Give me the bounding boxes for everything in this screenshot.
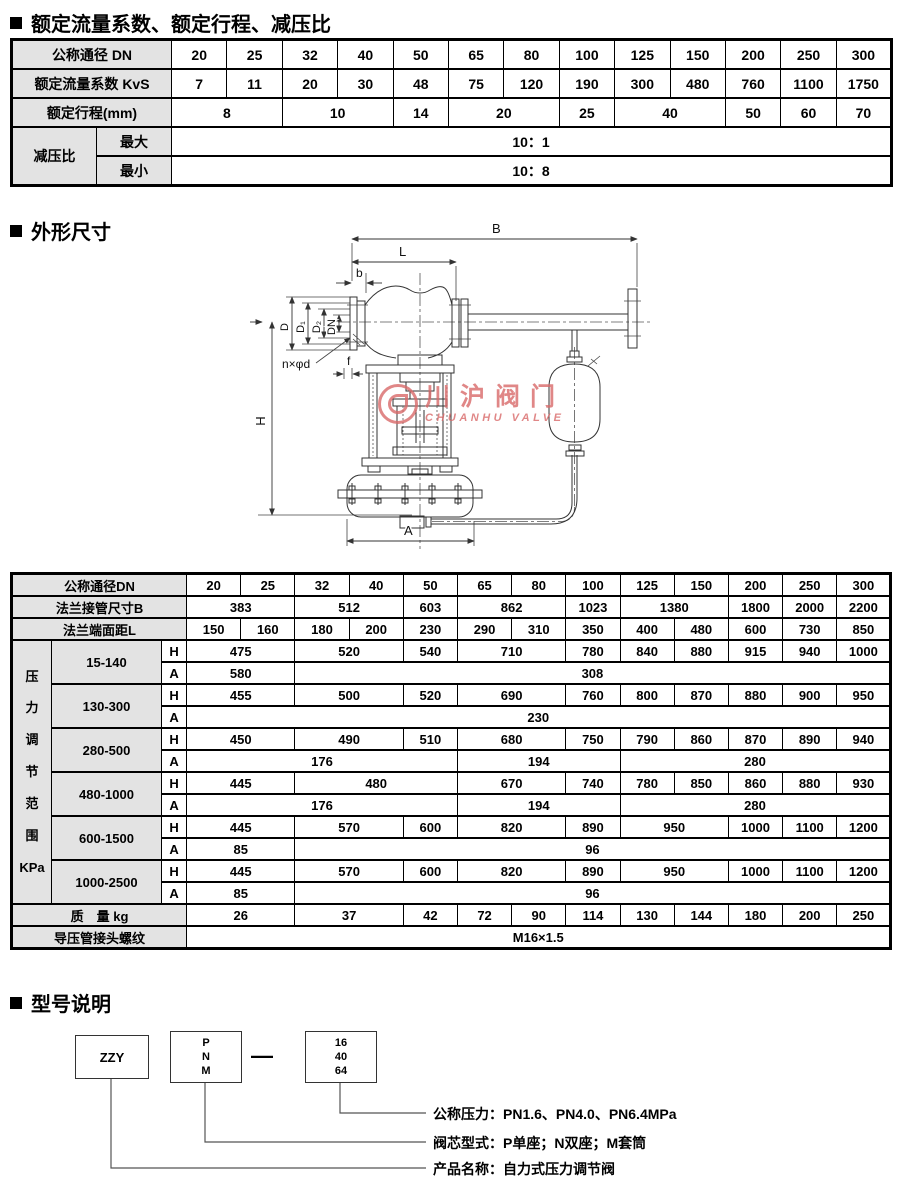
table-value-cell: 150 [674, 574, 728, 597]
table-value-cell: 1200 [837, 860, 891, 882]
dim-label-nxd: n×φd [282, 357, 310, 371]
table-value-cell: 50 [725, 98, 780, 127]
table-value-cell: 32 [295, 574, 349, 597]
table-value-cell: 603 [403, 596, 457, 618]
dim-label-A: A [404, 523, 413, 538]
table-value-cell: 125 [615, 40, 670, 70]
table-value-cell: 820 [457, 816, 565, 838]
model-box-pressure-rating: 16 40 64 [305, 1031, 377, 1083]
table-value-cell: 490 [295, 728, 403, 750]
table-value-cell: 1023 [566, 596, 620, 618]
table-row: 减压比最大10：1 [12, 127, 892, 156]
model-note-trim: 阀芯型式：P单座；N双座；M套筒 [433, 1133, 646, 1153]
table-value-cell: 1000 [837, 640, 891, 662]
table-value-cell: 300 [836, 40, 891, 70]
table-value-cell: H [162, 772, 187, 794]
table-value-cell: 850 [837, 618, 891, 640]
table-value-cell: 42 [403, 904, 457, 926]
table-value-cell: 200 [349, 618, 403, 640]
table-value-cell: 480 [295, 772, 458, 794]
table-value-cell: 200 [783, 904, 837, 926]
table-value-cell: 8 [172, 98, 283, 127]
table-value-cell: 580 [187, 662, 295, 684]
table-value-cell: 670 [457, 772, 565, 794]
table-value-cell: 200 [725, 40, 780, 70]
table-value-cell: 96 [295, 838, 891, 860]
table-value-cell: A [162, 794, 187, 816]
table-value-cell: 300 [837, 574, 891, 597]
table-value-cell: 290 [457, 618, 511, 640]
table-value-cell: 600 [403, 860, 457, 882]
table-label-cell: 导压管接头螺纹 [12, 926, 187, 949]
table-value-cell: 455 [187, 684, 295, 706]
table-value-cell: 840 [620, 640, 674, 662]
section-title-flow-text: 额定流量系数、额定行程、减压比 [31, 8, 331, 37]
table-value-cell: 350 [566, 618, 620, 640]
table-value-cell: 40 [349, 574, 403, 597]
table-value-cell: 144 [674, 904, 728, 926]
table-row: 600-1500H445570600820890950100011001200 [12, 816, 891, 838]
table-value-cell: 100 [566, 574, 620, 597]
table-value-cell: 510 [403, 728, 457, 750]
table-value-cell: 114 [566, 904, 620, 926]
table-row: 质 量 kg2637427290114130144180200250 [12, 904, 891, 926]
table-value-cell: 512 [295, 596, 403, 618]
table-value-cell: 1200 [837, 816, 891, 838]
table-value-cell: 40 [615, 98, 726, 127]
table-value-cell: 280 [620, 750, 891, 772]
table-value-cell: 96 [295, 882, 891, 904]
table-value-cell: 890 [566, 816, 620, 838]
table-value-cell: 70 [836, 98, 891, 127]
table-value-cell: 820 [457, 860, 565, 882]
catalog-page: 额定流量系数、额定行程、减压比 公称通径 DN20253240506580100… [0, 0, 900, 1186]
table-value-cell: 25 [559, 98, 614, 127]
table-row: 公称通径DN20253240506580100125150200250300 [12, 574, 891, 597]
table-value-cell: 790 [620, 728, 674, 750]
table-value-cell: 950 [837, 684, 891, 706]
table-value-cell: 40 [338, 40, 393, 70]
table-value-cell: 880 [674, 640, 728, 662]
table-value-cell: 10 [282, 98, 393, 127]
table-value-cell: 30 [338, 69, 393, 98]
table-label-cell: 280-500 [52, 728, 162, 772]
table-value-cell: 383 [187, 596, 295, 618]
table-value-cell: 308 [295, 662, 891, 684]
bullet-square-icon [10, 17, 22, 29]
table-value-cell: 280 [620, 794, 891, 816]
table-value-cell: 150 [187, 618, 241, 640]
model-box-trim-type: P N M [170, 1031, 242, 1083]
table-value-cell: 130 [620, 904, 674, 926]
table-label-cell: 公称通径 DN [12, 40, 172, 70]
table-value-cell: 90 [512, 904, 566, 926]
table-value-cell: 915 [728, 640, 782, 662]
table-value-cell: 400 [620, 618, 674, 640]
table-value-cell: 65 [448, 40, 503, 70]
table-value-cell: H [162, 860, 187, 882]
table-row: 公称通径 DN20253240506580100125150200250300 [12, 40, 892, 70]
section-title-model-text: 型号说明 [31, 988, 111, 1017]
table-value-cell: A [162, 750, 187, 772]
table-value-cell: 850 [674, 772, 728, 794]
table-value-cell: 65 [457, 574, 511, 597]
table-value-cell: 890 [783, 728, 837, 750]
table-value-cell: 900 [783, 684, 837, 706]
table-value-cell: 680 [457, 728, 565, 750]
table-value-cell: 940 [783, 640, 837, 662]
table-value-cell: 176 [187, 794, 458, 816]
table-value-cell: H [162, 816, 187, 838]
table-value-cell: 870 [674, 684, 728, 706]
table-value-cell: A [162, 838, 187, 860]
table-value-cell: 20 [187, 574, 241, 597]
table-value-cell: 730 [783, 618, 837, 640]
table-value-cell: 570 [295, 860, 403, 882]
model-note-pressure: 公称压力：PN1.6、PN4.0、PN6.4MPa [433, 1104, 677, 1124]
table-label-cell: 法兰接管尺寸B [12, 596, 187, 618]
dim-label-D1: D₁ [295, 321, 307, 333]
table-value-cell: 890 [566, 860, 620, 882]
table-value-cell: 80 [504, 40, 559, 70]
bullet-square-icon [10, 997, 22, 1009]
table-label-cell: 130-300 [52, 684, 162, 728]
dim-label-H: H [253, 416, 268, 425]
dim-label-D2: D₂ [311, 321, 323, 333]
table-value-cell: 250 [837, 904, 891, 926]
table-value-cell: H [162, 684, 187, 706]
table-value-cell: A [162, 662, 187, 684]
table-value-cell: 1750 [836, 69, 891, 98]
table-value-cell: 80 [512, 574, 566, 597]
table-value-cell: 750 [566, 728, 620, 750]
table-value-cell: 862 [457, 596, 565, 618]
table-value-cell: 194 [457, 794, 620, 816]
table-value-cell: 540 [403, 640, 457, 662]
table-row: 1000-2500H445570600820890950100011001200 [12, 860, 891, 882]
table-value-cell: 250 [783, 574, 837, 597]
table-value-cell: 445 [187, 860, 295, 882]
table-value-cell: 20 [172, 40, 227, 70]
table-value-cell: 50 [393, 40, 448, 70]
table-value-cell: 176 [187, 750, 458, 772]
table-value-cell: 25 [227, 40, 282, 70]
table-value-cell: 10：8 [172, 156, 892, 186]
table-row: 280-500H450490510680750790860870890940 [12, 728, 891, 750]
table-value-cell: 25 [241, 574, 295, 597]
table-value-cell: 32 [282, 40, 337, 70]
table-value-cell: 500 [295, 684, 403, 706]
table-value-cell: 50 [403, 574, 457, 597]
table-row: 额定行程(mm)81014202540506070 [12, 98, 892, 127]
table-value-cell: 85 [187, 838, 295, 860]
table-value-cell: 1100 [783, 816, 837, 838]
table-value-cell: 950 [620, 860, 728, 882]
table-value-cell: 60 [781, 98, 836, 127]
section-title-flow: 额定流量系数、额定行程、减压比 [10, 8, 331, 37]
table-value-cell: 760 [566, 684, 620, 706]
table-row: 压 力 调 节 范 围 KPa15-140H475520540710780840… [12, 640, 891, 662]
table-value-cell: 1800 [728, 596, 782, 618]
table-label-cell: 公称通径DN [12, 574, 187, 597]
table-value-cell: 200 [728, 574, 782, 597]
table-value-cell: 780 [566, 640, 620, 662]
dim-label-b: b [356, 266, 363, 280]
table-label-cell: 600-1500 [52, 816, 162, 860]
table-value-cell: 37 [295, 904, 403, 926]
table-value-cell: 760 [725, 69, 780, 98]
table-value-cell: 480 [670, 69, 725, 98]
table-value-cell: 570 [295, 816, 403, 838]
table-value-cell: 85 [187, 882, 295, 904]
table-value-cell: 930 [837, 772, 891, 794]
table-row: 导压管接头螺纹M16×1.5 [12, 926, 891, 949]
table-value-cell: 48 [393, 69, 448, 98]
table-value-cell: 2200 [837, 596, 891, 618]
table-value-cell: 20 [282, 69, 337, 98]
table-value-cell: 20 [448, 98, 559, 127]
table-value-cell: 1380 [620, 596, 728, 618]
table-value-cell: 600 [728, 618, 782, 640]
model-box-series: ZZY [75, 1035, 149, 1079]
valve-outline-drawing: B L b D D₁ D₂ DN n×φd f [0, 215, 900, 565]
table-value-cell: 10：1 [172, 127, 892, 156]
table-value-cell: 7 [172, 69, 227, 98]
table-value-cell: 190 [559, 69, 614, 98]
table-row: 法兰端面距L1501601802002302903103504004806007… [12, 618, 891, 640]
table-value-cell: 445 [187, 816, 295, 838]
table-value-cell: 600 [403, 816, 457, 838]
table-value-cell: 860 [728, 772, 782, 794]
table-value-cell: 870 [728, 728, 782, 750]
table-value-cell: 120 [504, 69, 559, 98]
table-value-cell: 480 [674, 618, 728, 640]
table-value-cell: 520 [403, 684, 457, 706]
table-label-cell: 480-1000 [52, 772, 162, 816]
table-value-cell: M16×1.5 [187, 926, 891, 949]
dimension-table: 公称通径DN20253240506580100125150200250300法兰… [10, 572, 892, 950]
table-label-cell: 15-140 [52, 640, 162, 684]
table-value-cell: 125 [620, 574, 674, 597]
table-value-cell: 690 [457, 684, 565, 706]
table-value-cell: 230 [187, 706, 891, 728]
table-value-cell: 780 [620, 772, 674, 794]
table-value-cell: 1000 [728, 860, 782, 882]
table-value-cell: 250 [781, 40, 836, 70]
table-value-cell: 230 [403, 618, 457, 640]
dim-label-DN: DN [326, 319, 338, 335]
table-label-cell: 压 力 调 节 范 围 KPa [12, 640, 52, 904]
model-dash: — [251, 1043, 273, 1069]
table-label-cell: 额定行程(mm) [12, 98, 172, 127]
table-value-cell: 11 [227, 69, 282, 98]
table-value-cell: 310 [512, 618, 566, 640]
dim-label-L: L [399, 244, 406, 259]
model-note-product: 产品名称：自力式压力调节阀 [433, 1159, 615, 1179]
table-label-cell: 最小 [97, 156, 172, 186]
table-value-cell: 940 [837, 728, 891, 750]
table-value-cell: 520 [295, 640, 403, 662]
table-label-cell: 1000-2500 [52, 860, 162, 904]
table-value-cell: 800 [620, 684, 674, 706]
table-label-cell: 减压比 [12, 127, 97, 186]
table-row: 130-300H455500520690760800870880900950 [12, 684, 891, 706]
table-row: 额定流量系数 KvS711203048751201903004807601100… [12, 69, 892, 98]
dim-label-D: D [279, 323, 291, 331]
table-value-cell: 880 [783, 772, 837, 794]
table-value-cell: A [162, 882, 187, 904]
table-value-cell: 710 [457, 640, 565, 662]
dim-label-B: B [492, 221, 501, 236]
table-value-cell: 880 [728, 684, 782, 706]
dim-label-f: f [347, 354, 351, 368]
table-value-cell: 14 [393, 98, 448, 127]
table-value-cell: 445 [187, 772, 295, 794]
table-value-cell: 300 [615, 69, 670, 98]
section-title-model: 型号说明 [10, 988, 111, 1017]
table-value-cell: 860 [674, 728, 728, 750]
table-label-cell: 额定流量系数 KvS [12, 69, 172, 98]
table-value-cell: 160 [241, 618, 295, 640]
table-value-cell: 2000 [783, 596, 837, 618]
table-value-cell: 100 [559, 40, 614, 70]
table-row: 最小10：8 [12, 156, 892, 186]
table-value-cell: 26 [187, 904, 295, 926]
table-label-cell: 法兰端面距L [12, 618, 187, 640]
table-row: 法兰接管尺寸B38351260386210231380180020002200 [12, 596, 891, 618]
table-value-cell: 475 [187, 640, 295, 662]
table-value-cell: H [162, 728, 187, 750]
flow-coefficient-table: 公称通径 DN20253240506580100125150200250300额… [10, 38, 893, 187]
table-value-cell: 950 [620, 816, 728, 838]
table-value-cell: 180 [295, 618, 349, 640]
table-value-cell: 75 [448, 69, 503, 98]
table-value-cell: 194 [457, 750, 620, 772]
table-label-cell: 最大 [97, 127, 172, 156]
table-value-cell: 450 [187, 728, 295, 750]
table-value-cell: 1100 [781, 69, 836, 98]
table-value-cell: A [162, 706, 187, 728]
table-value-cell: 740 [566, 772, 620, 794]
table-value-cell: H [162, 640, 187, 662]
table-value-cell: 180 [728, 904, 782, 926]
table-value-cell: 150 [670, 40, 725, 70]
table-value-cell: 1000 [728, 816, 782, 838]
table-label-cell: 质 量 kg [12, 904, 187, 926]
table-value-cell: 72 [457, 904, 511, 926]
table-row: 480-1000H445480670740780850860880930 [12, 772, 891, 794]
table-value-cell: 1100 [783, 860, 837, 882]
